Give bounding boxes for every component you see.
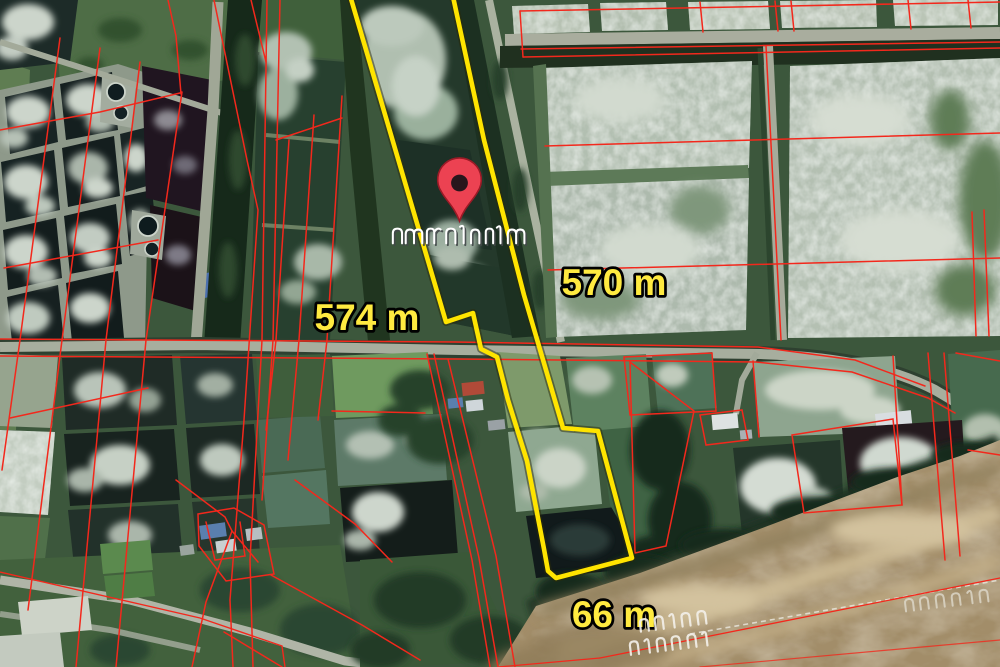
svg-text:574 m: 574 m [315,297,420,338]
svg-text:66 m: 66 m [572,594,656,635]
svg-text:570 m: 570 m [562,262,667,303]
